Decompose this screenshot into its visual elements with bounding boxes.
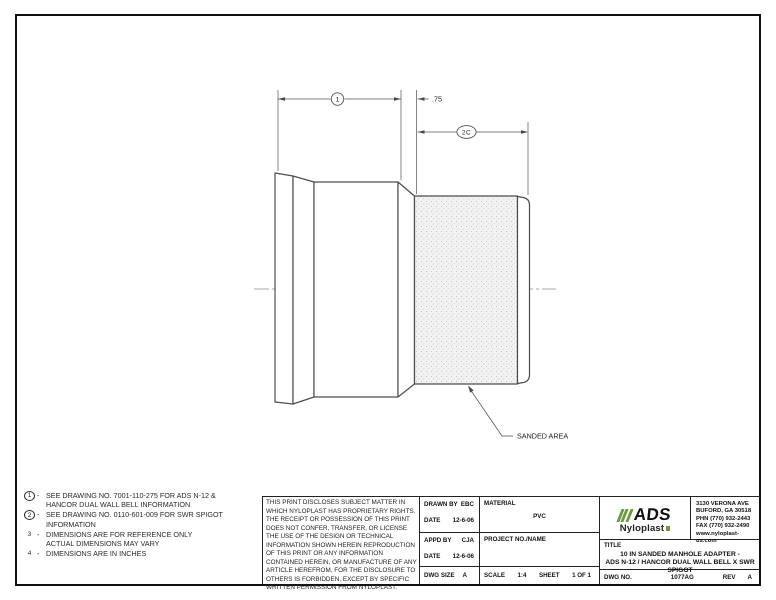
appd-by-value: CJA	[462, 537, 474, 544]
material-cell: MATERIAL PVC	[480, 496, 600, 533]
dim2c-label: 2C	[462, 129, 471, 136]
note-1-line1: SEE DRAWING NO. 7001-110-275 FOR ADS N-1…	[46, 491, 216, 500]
drawn-by-label: DRAWN BY	[424, 501, 458, 508]
dwg-no-label: DWG NO.	[600, 574, 632, 581]
dwg-size-cell: DWG SIZEA	[420, 567, 480, 584]
address-line: 3130 VERONA AVE	[696, 501, 758, 509]
bell-body	[314, 182, 398, 397]
dim1-label: 1	[336, 96, 340, 103]
address-line: FAX (770) 932-2490	[696, 523, 758, 531]
company-address: 3130 VERONA AVE BUFORD, GA 30518 PHN (77…	[690, 497, 760, 539]
appd-date-value: 12-6-06	[453, 553, 474, 560]
sanded-area-callout: SANDED AREA	[468, 386, 568, 441]
ads-nyloplast-logo: ADS Nyloplast	[600, 497, 690, 539]
dwg-size-label: DWG SIZE	[424, 572, 455, 579]
project-cell: PROJECT NO./NAME	[480, 533, 600, 567]
drawn-by-value: EBC	[461, 501, 474, 508]
drawn-by-cell: DRAWN BYEBC DATE12-6-06	[420, 496, 480, 533]
approved-by-cell: APPD BYCJA DATE12-6-06	[420, 533, 480, 567]
arrowhead	[468, 386, 474, 393]
note-4-number: 4	[24, 549, 35, 559]
address-line: BUFORD, GA 30518	[696, 508, 758, 516]
dimension-2c: 2C	[418, 126, 529, 139]
rev-label: REV	[723, 574, 748, 581]
adapter-drawing: 1 .75 2C SANDED AREA	[0, 0, 776, 496]
note-2-line2: INFORMATION	[46, 520, 96, 529]
material-value: PVC	[480, 513, 599, 520]
general-notes: 1- SEE DRAWING NO. 7001-110-275 FOR ADS …	[24, 491, 262, 559]
nyloplast-wordmark: Nyloplast	[620, 523, 671, 534]
note-3-number: 3	[24, 530, 35, 540]
dimension-1: 1	[278, 93, 401, 105]
bell-lip	[275, 173, 293, 404]
note-1: 1- SEE DRAWING NO. 7001-110-275 FOR ADS …	[24, 491, 262, 510]
note-2-line1: SEE DRAWING NO. 0110-601-009 FOR SWR SPI…	[46, 510, 223, 519]
note-1-number: 1	[24, 491, 35, 501]
drawing-sheet: 1 .75 2C SANDED AREA 1- SEE DRAW	[0, 0, 776, 600]
logo-green-mark-icon	[666, 526, 671, 531]
material-label: MATERIAL	[480, 497, 599, 507]
dwg-size-value: A	[463, 572, 467, 579]
note-1-line2: HANCOR DUAL WALL BELL INFORMATION	[46, 500, 190, 509]
note-2-number: 2	[24, 510, 35, 520]
note-3-line2: ACTUAL DIMENSIONS MAY VARY	[46, 539, 159, 548]
project-label: PROJECT NO./NAME	[480, 533, 599, 543]
note-3-line1: DIMENSIONS ARE FOR REFERENCE ONLY	[46, 530, 192, 539]
proprietary-notice: THIS PRINT DISCLOSES SUBJECT MATTER IN W…	[262, 496, 420, 584]
drawn-date-label: DATE	[424, 517, 440, 524]
title-cell: TITLE 10 IN SANDED MANHOLE ADAPTER - ADS…	[600, 540, 760, 570]
brand-cell: ADS Nyloplast 3130 VERONA AVE BUFORD, GA…	[600, 496, 760, 540]
dwg-no-value: 1077AG	[632, 574, 723, 581]
chamfer-dim-text: .75	[432, 95, 442, 104]
note-2: 2- SEE DRAWING NO. 0110-601-009 FOR SWR …	[24, 510, 262, 529]
appd-by-label: APPD BY	[424, 537, 452, 544]
bell-transition	[293, 176, 314, 404]
arrowhead	[278, 97, 285, 101]
note-4-line1: DIMENSIONS ARE IN INCHES	[46, 549, 146, 558]
sheet-label: SHEET	[539, 572, 560, 579]
chamfer-section	[398, 182, 415, 397]
sanded-region	[415, 196, 518, 384]
scale-value: 1:4	[517, 572, 526, 579]
scale-label: SCALE	[484, 572, 505, 579]
address-line: PHN (770) 932-2443	[696, 516, 758, 524]
scale-sheet-cell: SCALE 1:4 SHEET 1 OF 1	[480, 567, 600, 584]
spigot-end-cap	[518, 197, 530, 384]
arrowhead	[521, 130, 528, 134]
title-label: TITLE	[600, 540, 760, 549]
appd-date-label: DATE	[424, 553, 440, 560]
dwg-no-cell: DWG NO. 1077AG REV A	[600, 570, 760, 584]
arrowhead	[394, 97, 401, 101]
sheet-value: 1 OF 1	[572, 572, 591, 579]
note-4: 4- DIMENSIONS ARE IN INCHES	[24, 549, 262, 559]
dimension-chamfer: .75	[418, 95, 443, 104]
drawing-title-line1: 10 IN SANDED MANHOLE ADAPTER -	[600, 551, 760, 559]
rev-value: A	[748, 574, 760, 581]
sanded-callout-text: SANDED AREA	[517, 432, 568, 441]
drawn-date-value: 12-6-06	[453, 517, 474, 524]
note-3: 3- DIMENSIONS ARE FOR REFERENCE ONLYACTU…	[24, 530, 262, 549]
ads-wordmark: ADS	[634, 507, 672, 522]
